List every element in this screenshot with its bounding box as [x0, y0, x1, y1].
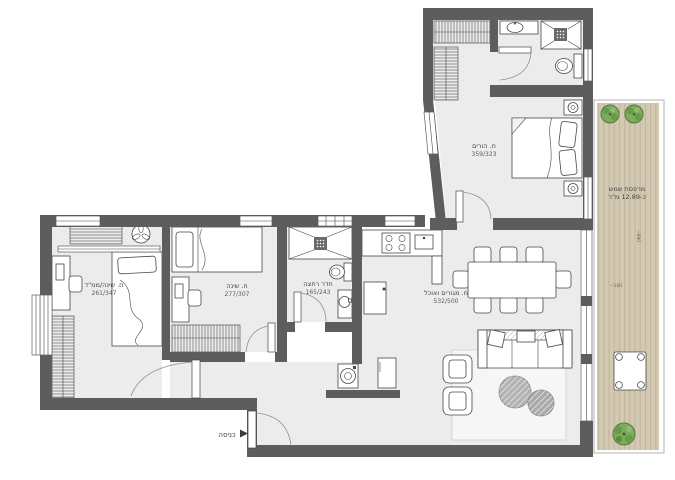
dining-chair — [500, 297, 517, 313]
armchair — [443, 355, 472, 383]
entrance-label: כניסה — [218, 431, 235, 439]
window — [56, 216, 100, 226]
master-bedroom-label: ח. הורים — [472, 142, 496, 150]
nightstand — [564, 181, 582, 196]
window — [424, 112, 438, 154]
terrace — [594, 100, 664, 453]
single-bed — [172, 227, 262, 272]
terrace-chair — [638, 354, 645, 361]
dining-table — [468, 262, 556, 298]
cooktop — [382, 233, 410, 253]
window — [584, 49, 592, 81]
safe-room-label: ח. שינה/ממ"ד — [85, 281, 124, 289]
dining-chair — [474, 297, 491, 313]
dining-chair — [555, 271, 571, 288]
dining-chair — [526, 297, 543, 313]
master-bedroom-dims: 359/323 — [472, 151, 497, 158]
bathroom-dims: 165/243 — [306, 289, 331, 296]
terrace-table-set — [614, 352, 646, 390]
window — [240, 216, 272, 226]
safe-room-dims: 261/347 — [92, 290, 117, 297]
terrace-length-dim: ~880 — [635, 230, 641, 242]
window — [32, 295, 52, 355]
dining-chair — [453, 271, 469, 288]
bedroom-label: ח. שינה — [226, 282, 247, 290]
kitchen-peninsula — [432, 256, 442, 284]
nightstand — [564, 100, 582, 115]
terrace-chair — [616, 382, 623, 389]
pillow — [545, 329, 563, 347]
floor-plan: ח. הורים 359/323 ח. שינה/ממ"ד 261/347 ח.… — [0, 0, 675, 480]
kitchen-sink — [415, 235, 433, 249]
terrace-deck-planks — [597, 103, 659, 450]
shower — [289, 227, 352, 259]
sofa — [478, 329, 572, 368]
window — [584, 177, 592, 219]
window — [385, 216, 415, 226]
shower — [541, 21, 581, 49]
window — [318, 216, 352, 226]
terrace-width-dim: ~160 — [610, 283, 622, 289]
sliding-glass-door — [581, 230, 592, 421]
dining-chair — [526, 247, 543, 263]
entrance-annotation: כניסה — [218, 430, 248, 440]
bathroom-label: חדר רחצה — [303, 280, 333, 288]
washing-machine — [338, 364, 358, 388]
living-dining-label: ח. מגורים ואוכל — [424, 289, 468, 297]
terrace-label: מרפסת שמש — [609, 185, 645, 193]
plant-icon — [601, 105, 619, 123]
pillow — [487, 330, 505, 348]
refrigerator — [364, 282, 386, 314]
plant-icon — [625, 105, 643, 123]
pillow — [517, 331, 535, 342]
kitchen-cabinet — [378, 358, 396, 388]
armchair — [443, 387, 472, 415]
sink — [338, 290, 352, 318]
living-dining-dims: 532/500 — [434, 298, 459, 305]
dining-chair — [500, 247, 517, 263]
plant-icon — [613, 423, 635, 445]
window — [58, 246, 160, 252]
terrace-chair — [638, 382, 645, 389]
terrace-chair — [616, 354, 623, 361]
sink — [500, 21, 538, 34]
entrance-arrow-icon — [240, 430, 248, 438]
terrace-area: כ-12.89 מ"ר — [608, 193, 646, 201]
toilet — [330, 263, 353, 281]
bedroom-dims: 277/307 — [225, 291, 250, 298]
dining-chair — [474, 247, 491, 263]
single-bed — [112, 252, 162, 346]
wardrobe — [172, 325, 240, 352]
double-bed — [512, 118, 582, 178]
